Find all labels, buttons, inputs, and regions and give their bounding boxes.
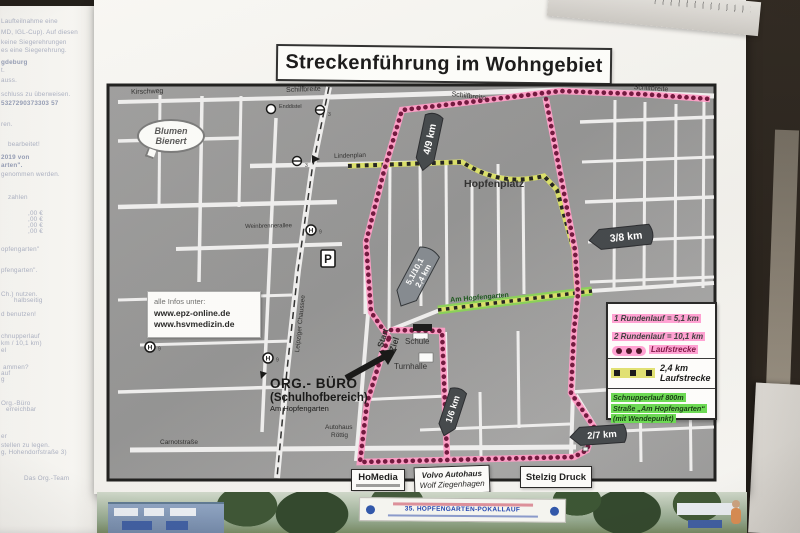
svg-text:H: H <box>266 356 271 363</box>
legend-laufstrecke: Laufstrecke <box>649 345 698 354</box>
event-banner: 35. HOPFENGARTEN-POKALLAUF <box>359 497 566 523</box>
legend-laufstrecke2: Laufstrecke <box>660 373 711 383</box>
legend-schnupperlauf-line: (mit Wendepunkt) <box>611 414 676 423</box>
runner-person <box>731 508 741 524</box>
banner-logo-icon <box>366 505 375 514</box>
legend-box: 1 Rundenlauf = 5,1 km 2 Rundenlauf = 10,… <box>606 302 717 420</box>
runner-person-head <box>732 500 740 508</box>
info-box: alle Infos unter: www.epz-online.de www.… <box>147 291 261 338</box>
notice-board-photo: Laufteilnahme eineMD, IGL-Cup). Auf dies… <box>0 0 800 533</box>
photo-sign-left <box>108 502 224 533</box>
yellow-dash-sample <box>611 368 655 378</box>
sponsor-volvo: Volvo Autohaus Wolf Ziegenhagen <box>414 465 491 496</box>
info-heading: alle Infos unter: <box>154 297 254 306</box>
legend-schnupperlauf-line: Schnupperlauf 800m <box>611 393 686 402</box>
sponsor-stelzig: Stelzig Druck <box>520 466 592 488</box>
bubble-line: Bienert <box>155 136 186 146</box>
banner-logo-icon <box>550 507 559 516</box>
banner-title: 35. HOPFENGARTEN-POKALLAUF <box>405 506 520 514</box>
svg-text:P: P <box>324 254 332 266</box>
tram-stop-icon <box>267 105 276 114</box>
legend-round2: 2 Rundenlauf = 10,1 km <box>612 332 705 341</box>
school-building <box>413 324 432 331</box>
svg-text:2/7 km: 2/7 km <box>587 429 617 442</box>
sponsor-subtitle-blur <box>356 484 400 487</box>
info-url: www.epz-online.de <box>154 308 254 319</box>
sponsor-homedia: HoMedia <box>351 469 405 491</box>
svg-text:3: 3 <box>305 163 308 169</box>
gym-building <box>419 353 433 362</box>
legend-2-4km: 2,4 km <box>660 363 711 373</box>
info-url: www.hsvmedizin.de <box>154 319 254 330</box>
legend-schnupperlauf-line: Straße „Am Hopfengarten“ <box>611 404 707 413</box>
svg-text:9: 9 <box>276 358 279 364</box>
svg-text:H: H <box>148 345 153 352</box>
bubble-line: Blumen <box>154 126 187 136</box>
svg-text:3: 3 <box>328 112 331 118</box>
legend-row-rounds: 1 Rundenlauf = 5,1 km 2 Rundenlauf = 10,… <box>608 304 715 359</box>
svg-text:9: 9 <box>319 230 322 236</box>
legend-round1: 1 Rundenlauf = 5,1 km <box>612 314 701 323</box>
legend-row-schnupperlauf: Schnupperlauf 800mStraße „Am Hopfengarte… <box>608 389 715 428</box>
svg-text:H: H <box>309 228 314 235</box>
parking-icon: P <box>321 250 335 267</box>
pink-dots-sample <box>612 346 646 356</box>
org-buero-label: ORG.- BÜRO (Schulhofbereich) Am Hopfenga… <box>270 377 420 414</box>
legend-row-2-4km: 2,4 km Laufstrecke <box>608 359 715 389</box>
map-svg: 3 3 H 9 H 9 <box>0 0 800 533</box>
photo-strip: 35. HOPFENGARTEN-POKALLAUF <box>97 492 747 533</box>
svg-text:9: 9 <box>158 347 161 353</box>
